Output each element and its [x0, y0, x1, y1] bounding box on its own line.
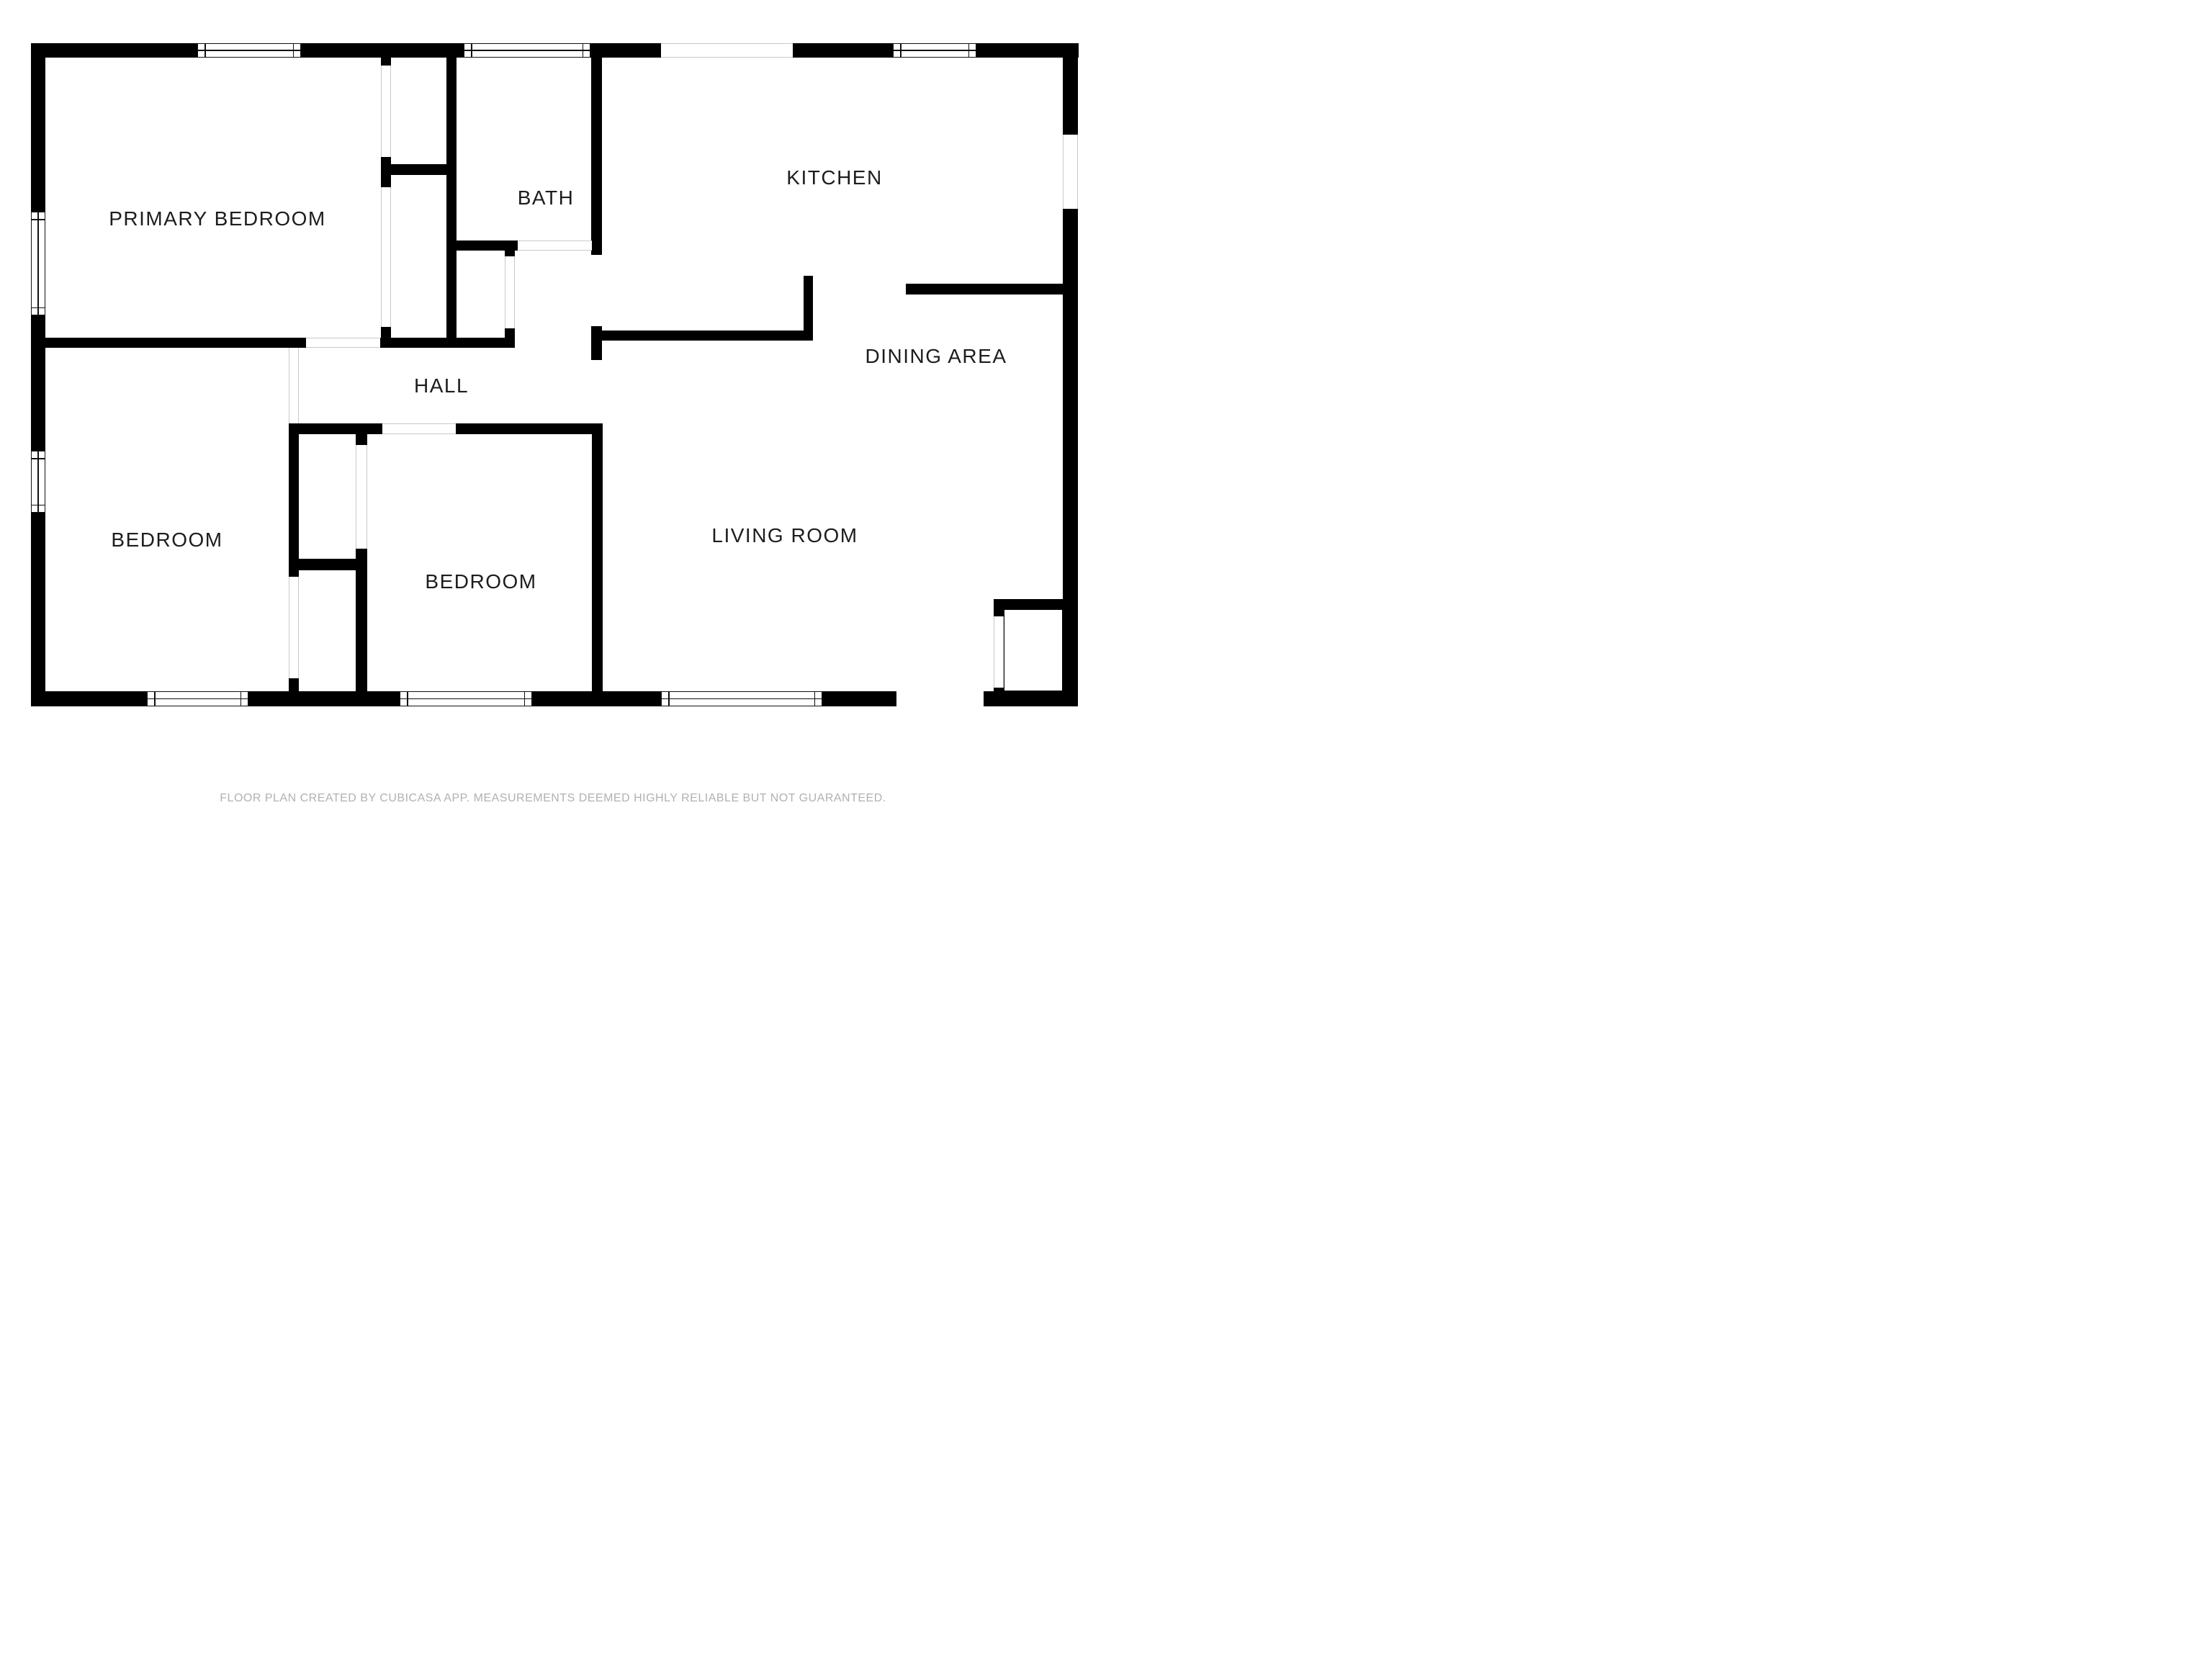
window-frame-line [464, 50, 590, 51]
window [661, 691, 822, 706]
room-label-hall: HALL [414, 374, 469, 397]
wall [994, 599, 1063, 609]
window [400, 691, 532, 706]
window-frame-line [668, 692, 670, 706]
window-frame-line [894, 50, 976, 51]
door-opening [518, 240, 592, 251]
floor-plan-canvas: PRIMARY BEDROOM BATH KITCHEN HALL DINING… [0, 0, 1106, 829]
window-frame-line [32, 219, 45, 220]
window-frame-line [407, 692, 408, 706]
wall [289, 423, 299, 577]
window [31, 212, 45, 315]
room-label-bath: BATH [518, 186, 575, 210]
window [147, 691, 248, 706]
wall [592, 423, 603, 691]
door-opening [661, 43, 793, 58]
door-opening [381, 187, 391, 327]
room-label-primary-bedroom: PRIMARY BEDROOM [109, 207, 326, 230]
wall [45, 338, 306, 348]
door-opening [289, 348, 299, 423]
wall [505, 240, 515, 256]
wall [906, 284, 1063, 295]
window-frame-line [204, 44, 206, 57]
wall [994, 688, 1004, 692]
window-frame-line [32, 458, 45, 459]
window-frame-line [293, 44, 295, 57]
window-frame-line [662, 698, 822, 700]
wall [804, 276, 813, 341]
wall [381, 164, 456, 175]
window-frame-line [240, 692, 242, 706]
window-frame-line [148, 698, 248, 700]
window-frame-line [524, 692, 526, 706]
room-label-bedroom-middle: BEDROOM [425, 570, 536, 593]
door-opening [1063, 135, 1078, 209]
door-opening [505, 256, 515, 328]
room-label-bedroom-left: BEDROOM [111, 529, 222, 552]
wall [289, 423, 382, 434]
window-frame-line [968, 44, 970, 57]
wall [456, 423, 597, 434]
entry-porch [1004, 609, 1063, 691]
window [31, 451, 45, 513]
wall [505, 328, 515, 338]
wall [601, 331, 813, 341]
wall [591, 58, 602, 255]
wall [379, 338, 515, 348]
window-frame-line [814, 692, 816, 706]
door-opening [994, 616, 1004, 688]
room-label-living-room: LIVING ROOM [711, 524, 858, 547]
wall [356, 549, 367, 691]
window [893, 43, 976, 58]
door-opening [382, 423, 456, 434]
room-label-dining-area: DINING AREA [866, 345, 1007, 368]
window-frame-line [32, 505, 45, 506]
wall [591, 326, 602, 360]
door-opening [306, 338, 380, 348]
window-frame-line [154, 692, 156, 706]
door-opening [289, 577, 299, 678]
window-frame-line [37, 451, 39, 512]
wall [381, 327, 391, 338]
window-frame-line [471, 44, 472, 57]
window-frame-line [583, 44, 584, 57]
window-frame-line [400, 698, 531, 700]
floor-plan-drawing [0, 0, 1106, 829]
window-frame-line [37, 212, 39, 315]
window-frame-line [198, 50, 300, 51]
wall [984, 691, 1078, 706]
room-label-kitchen: KITCHEN [786, 166, 882, 189]
window [197, 43, 301, 58]
window-frame-line [900, 44, 902, 57]
wall [31, 43, 45, 706]
wall [289, 678, 299, 691]
door-opening [356, 445, 367, 549]
wall [994, 599, 1004, 616]
footer-disclaimer: FLOOR PLAN CREATED BY CUBICASA APP. MEAS… [0, 792, 1106, 805]
wall [289, 559, 356, 570]
door-opening [381, 66, 391, 157]
window [464, 43, 590, 58]
wall [446, 58, 457, 338]
window-frame-line [32, 307, 45, 309]
